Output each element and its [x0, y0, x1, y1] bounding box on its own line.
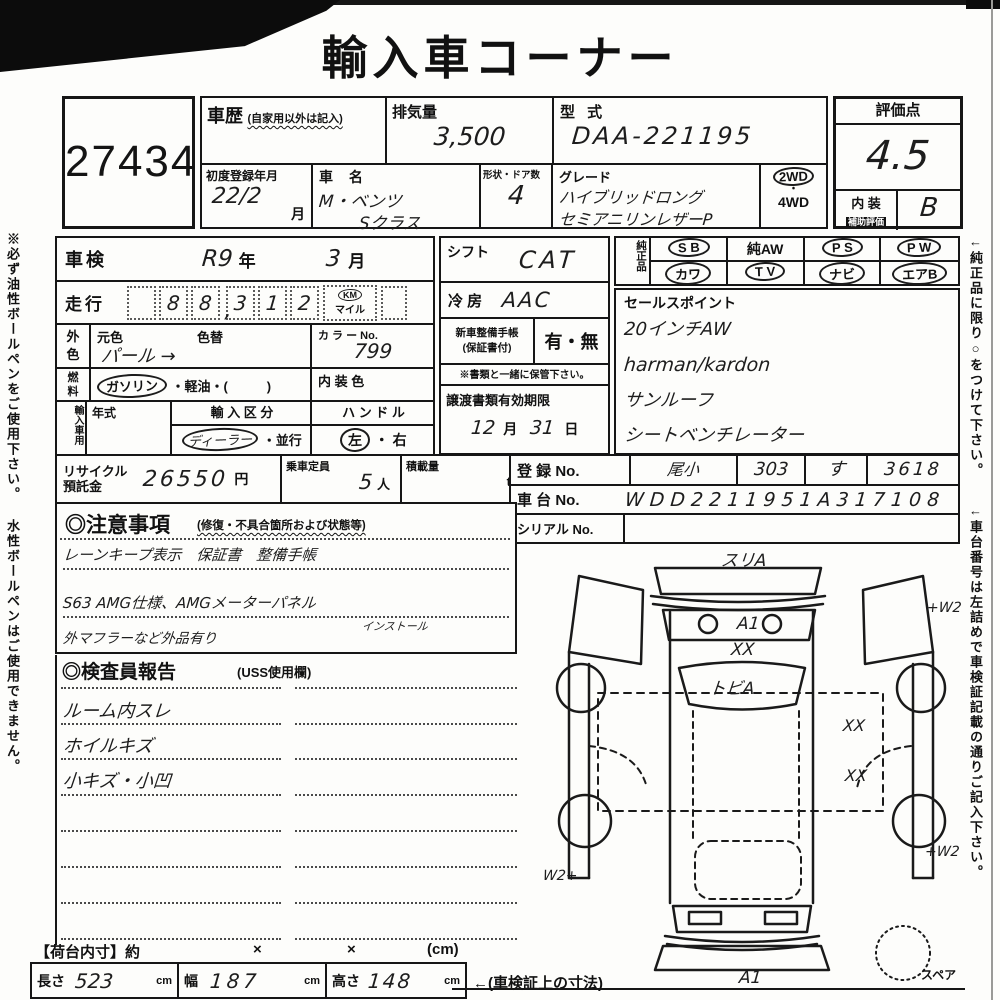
notes-line-2-sub: インストール	[361, 618, 428, 634]
width-value: 187	[209, 969, 261, 993]
genuine-item: T V	[728, 262, 805, 285]
drive-2wd-circled: 2WD	[773, 166, 815, 186]
load-label: 積載量	[402, 456, 519, 474]
car-name-cell: 車 名 M・ベンツ Sクラス	[311, 163, 481, 229]
inspector-report-section: ◎検査員報告 (USS使用欄) ルーム内スレ ホイルキズ 小キズ・小凹	[55, 655, 520, 945]
length-unit: cm	[156, 975, 172, 987]
model-year-label: 年式	[92, 406, 116, 420]
import-class-rest: ・並行	[263, 433, 302, 448]
registration-office: 尾小	[666, 456, 700, 484]
color-label: 外	[57, 328, 89, 346]
color-no-value: 799	[353, 339, 393, 363]
diagram-front-note: スリA	[720, 546, 768, 571]
transfer-day-value: 31	[529, 417, 555, 439]
interior-color-label: 内 装 色	[318, 374, 364, 389]
handle-rest: ・ 右	[375, 432, 407, 448]
shaken-year-unit: 年	[239, 247, 256, 272]
keep-note: ※書類と一緒に保管下さい。	[460, 370, 590, 381]
mileage-digit-box: 8	[159, 286, 188, 320]
chassis-label: 車 台 No.	[517, 489, 625, 510]
interior-sub-label: 補助評価	[846, 217, 886, 227]
orig-color-value: パール →	[100, 342, 177, 368]
service-book-cell: 新車整備手帳 (保証書付) 有・無	[439, 317, 610, 365]
diagram-hood-xx: XX	[730, 640, 755, 660]
genuine-parts-grid: 純正品 S B 純AW P S P W カワ T V ナビ エアB	[614, 236, 960, 286]
cargo-dim-heading-row: 【荷台内寸】約 × × (cm)	[35, 941, 505, 961]
mileage-row: 走行 8 8 3 1 2 , KM マイル	[55, 280, 435, 325]
mileage-digit-box: 8	[191, 286, 220, 320]
recycle-label: リサイクル	[63, 464, 127, 479]
drive-type-cell: 2WD ・ 4WD	[759, 163, 828, 229]
car-name-label: 車 名	[319, 167, 473, 187]
car-history-note: (自家用以外は記入)	[247, 113, 342, 125]
serial-row: シリアル No.	[509, 513, 960, 544]
diagram-spare-label: スペア	[921, 966, 956, 983]
first-registration-value: 22/2	[211, 184, 263, 209]
first-registration-cell: 初度登録年月 22/2 月	[200, 163, 313, 229]
score-value: 4.5	[863, 125, 932, 187]
color-change-label: 色替	[197, 327, 223, 346]
ac-cell: 冷 房 AAC	[439, 281, 610, 319]
notes-line-2: S63 AMG仕様、AMGメーターパネル	[62, 592, 317, 613]
genuine-item: カワ	[651, 262, 728, 285]
shift-cell: シフト CAT	[439, 236, 610, 283]
mileage-digit-box	[127, 286, 156, 320]
first-registration-unit: 月	[291, 204, 305, 224]
transfer-month-unit: 月	[503, 421, 517, 437]
right-margin-note-1: ←純正品に限り○をつけて下さい。	[968, 234, 983, 478]
car-history-cell: 車歴 (自家用以外は記入)	[200, 96, 387, 165]
fuel-label: 燃	[57, 371, 89, 386]
transfer-docs-label: 譲渡書類有効期限	[441, 386, 608, 409]
mileage-unit-box: KM マイル	[323, 285, 377, 321]
mileage-extra-box	[381, 286, 407, 320]
right-margin-note-2: ←車台番号は左詰めで車検証記載の通りご記入下さい。	[968, 503, 983, 880]
service-book-sublabel: (保証書付)	[441, 340, 533, 355]
mileage-label: 走行	[65, 290, 127, 315]
car-history-label: 車歴	[207, 106, 243, 126]
model-code-cell: 型 式 DAA-221195	[552, 96, 828, 165]
capacity-unit: 人	[377, 477, 390, 492]
registration-row: 登 録 No. 尾小 303 す 3618	[509, 454, 960, 486]
sales-point-line: 20インチAW	[623, 313, 733, 347]
grade-value-1: ハイブリッドロング	[558, 184, 704, 208]
transfer-month-value: 12	[470, 417, 496, 439]
genuine-item: S B	[651, 238, 728, 262]
load-unit: t	[402, 474, 519, 489]
genuine-item: P S	[805, 238, 882, 262]
genuine-item: P W	[881, 238, 958, 262]
recycle-value: 26550	[142, 467, 229, 492]
inspector-line-1: ルーム内スレ	[62, 697, 172, 723]
diagram-hood-a: A1	[736, 614, 760, 634]
grade-cell: グレード ハイブリッドロング セミアニリンレザーP	[551, 163, 761, 229]
cargo-dim-box: 長さ 523 cm 幅 187 cm 高さ 148 cm	[30, 962, 467, 999]
notes-box: ◎注意事項 (修復・不具合箇所および状態等) レーンキープ表示 保証書 整備手帳…	[55, 502, 517, 654]
height-cell: 高さ 148 cm	[327, 964, 465, 997]
first-registration-label: 初度登録年月	[206, 167, 307, 184]
chassis-row: 車 台 No. WDD2211951A317108	[509, 484, 960, 515]
drive-dot: ・	[761, 186, 826, 194]
height-value: 148	[367, 969, 413, 993]
notes-heading: ◎注意事項	[65, 509, 170, 539]
import-use-label: 輸入車用	[57, 402, 87, 454]
shape-doors-label: 形状・ドア数	[483, 167, 549, 181]
sales-points-box: セールスポイント 20インチAW harman/kardon サンルーフ シート…	[614, 288, 960, 455]
registration-label: 登 録 No.	[517, 460, 629, 481]
cargo-dim-cm: (cm)	[427, 941, 459, 958]
cargo-dim-x2: ×	[347, 941, 356, 958]
chassis-value: WDD2211951A317108	[624, 489, 946, 511]
height-unit: cm	[444, 975, 460, 987]
service-book-options: 有・無	[545, 328, 599, 354]
diagram-xx-right-2: XX	[844, 766, 868, 785]
sales-point-line: シートベンチレーター	[623, 419, 806, 453]
mileage-digit-box: 1	[258, 286, 287, 320]
genuine-parts-label: 純正品	[616, 238, 651, 284]
ac-value: AAC	[501, 288, 553, 312]
shape-doors-cell: 形状・ドア数 4	[479, 163, 553, 229]
cargo-dim-x1: ×	[253, 941, 262, 958]
fuel-options-rest: ・軽油・( )	[171, 379, 271, 394]
length-cell: 長さ 523 cm	[32, 964, 179, 997]
shaken-month-value: 3	[324, 246, 341, 272]
diagram-w2-rear-left: W2+	[542, 868, 578, 884]
displacement-label: 排気量	[392, 101, 547, 122]
car-diagram: スリA A1 XX トビA +W2 XX XX W2+ +W2 A1 スペア	[543, 548, 967, 1000]
height-label: 高さ	[332, 971, 360, 991]
notes-heading-note: (修復・不具合箇所および状態等)	[197, 517, 366, 533]
right-margin-note: ←純正品に限り○をつけて下さい。 ←車台番号は左詰めで車検証記載の通りご記入下さ…	[966, 234, 985, 974]
inspector-line-3: 小キズ・小凹	[62, 767, 172, 793]
registration-number: 3618	[883, 456, 943, 484]
registration-class: 303	[753, 456, 790, 484]
handle-left-circled: 左	[340, 427, 371, 452]
left-margin-note: ※必ず油性ボールペンをご使用下さい。 水性ボールペンはご使用できません。	[3, 232, 22, 812]
import-class-circled: ディーラー	[182, 427, 259, 453]
shaken-year-value: R9	[201, 246, 234, 272]
fuel-gasoline-circled: ガソリン	[97, 373, 168, 399]
sales-points-label: セールスポイント	[624, 293, 950, 313]
shaken-label: 車検	[65, 246, 107, 272]
width-unit: cm	[304, 975, 320, 987]
ac-label: 冷 房	[448, 290, 482, 311]
sales-point-line: サンルーフ	[623, 384, 715, 418]
inspector-heading: ◎検査員報告	[62, 657, 176, 684]
notes-line-1: レーンキープ表示 保証書 整備手帳	[62, 544, 317, 565]
recycle-yen: 円	[234, 469, 248, 489]
length-label: 長さ	[37, 971, 65, 991]
shift-value: CAT	[518, 246, 579, 274]
interior-grade-value: B	[919, 191, 940, 226]
car-name-value-2: Sクラス	[358, 209, 422, 234]
mileage-unit-km: KM	[338, 289, 362, 302]
displacement-value: 3,500	[432, 122, 506, 151]
auction-sheet: 輸入車コーナー 27434 車歴 (自家用以外は記入) 排気量 3,500 型 …	[0, 0, 1000, 1000]
recycle-deposit-cell: リサイクル 預託金 26550 円 乗車定員 5 人 積載量 t	[55, 454, 517, 504]
drive-4wd: 4WD	[761, 194, 826, 210]
registration-kana: す	[826, 456, 846, 484]
model-code-label: 型 式	[560, 101, 820, 122]
exterior-color-row: 外 色 元色 色替 パール → カ ラ ー No. 799	[55, 323, 435, 369]
fuel-row: 燃 料 ガソリン ・軽油・( ) 内 装 色	[55, 367, 435, 402]
diagram-rear-a: A1	[738, 968, 762, 988]
evaluation-box: 評価点 4.5 内 装 補助評価 B	[833, 96, 963, 229]
handle-label: ハ ン ド ル	[312, 402, 435, 426]
lot-number-box: 27434	[62, 96, 195, 229]
shaken-month-unit: 月	[348, 247, 365, 272]
diagram-w2-rear-right: +W2	[924, 844, 960, 860]
cargo-dim-heading: 【荷台内寸】約	[35, 941, 140, 962]
notes-line-3: 外マフラーなど外品有り	[62, 628, 218, 648]
model-code-value: DAA-221195	[571, 122, 755, 150]
transfer-docs-cell: 譲渡書類有効期限 12 月 31 日	[439, 384, 610, 455]
import-class-label: 輸 入 区 分	[172, 402, 312, 426]
capacity-value: 5	[358, 470, 373, 494]
interior-label: 内 装	[836, 193, 896, 212]
genuine-item: ナビ	[805, 262, 882, 285]
shape-doors-value: 4	[506, 181, 525, 211]
lot-number: 27434	[65, 99, 192, 224]
score-label: 評価点	[836, 99, 960, 125]
shift-label: シフト	[447, 242, 489, 262]
serial-label: シリアル No.	[517, 519, 623, 538]
inspector-heading-note: (USS使用欄)	[237, 662, 311, 681]
scan-edge	[991, 0, 993, 1000]
grade-value-2: セミアニリンレザーP	[558, 206, 713, 230]
displacement-cell: 排気量 3,500	[385, 96, 554, 165]
keep-note-strip: ※書類と一緒に保管下さい。	[439, 363, 610, 386]
width-label: 幅	[184, 971, 198, 991]
diagram-windshield-note: トビA	[708, 674, 756, 699]
genuine-item: エアB	[881, 262, 958, 285]
diagram-xx-right-1: XX	[842, 716, 866, 735]
width-cell: 幅 187 cm	[179, 964, 327, 997]
import-row: 輸入車用 年式 輸 入 区 分 ディーラー ・並行 ハ ン ド ル 左 ・ 右	[55, 400, 435, 456]
top-right-mark	[966, 0, 1000, 9]
mileage-unit-mile: マイル	[335, 301, 365, 316]
service-book-label: 新車整備手帳	[441, 325, 533, 340]
page-title: 輸入車コーナー	[260, 22, 740, 78]
genuine-item: 純AW	[728, 238, 805, 262]
sales-point-line: harman/kardon	[623, 348, 772, 382]
transfer-day-unit: 日	[564, 421, 578, 437]
inspector-line-2: ホイルキズ	[62, 732, 154, 758]
mileage-digit-box: 2	[290, 286, 319, 320]
length-value: 523	[74, 969, 114, 993]
shaken-row: 車検 R9 年 3 月	[55, 236, 435, 282]
diagram-w2-front-right: +W2	[926, 600, 962, 616]
